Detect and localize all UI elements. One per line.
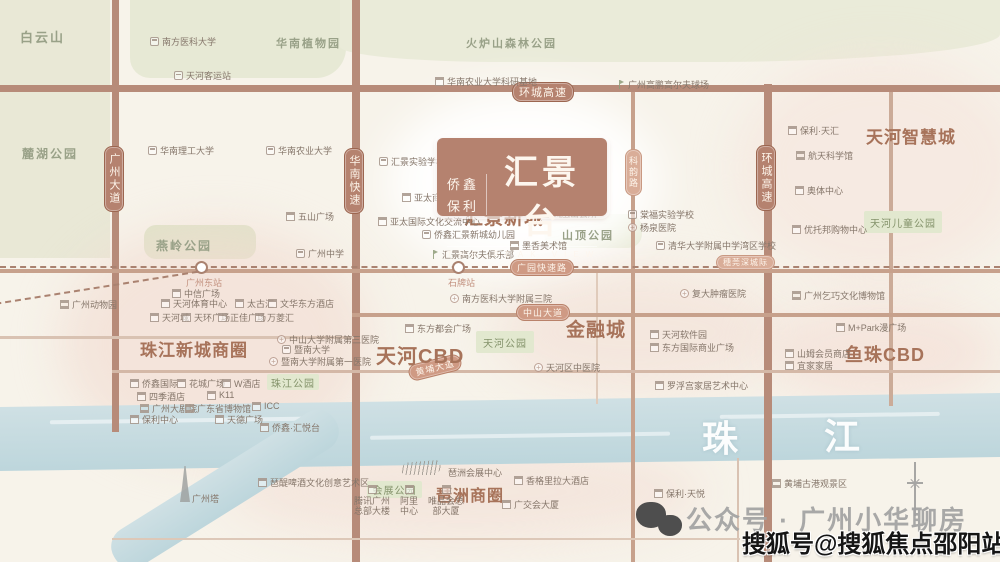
building-icon — [442, 485, 451, 494]
road-badge: 科韵路 — [625, 149, 642, 196]
building-icon — [368, 485, 377, 494]
district-label: 天河CBD — [376, 340, 464, 369]
school-icon — [656, 241, 665, 250]
poi-label: 保利·天悦 — [666, 487, 705, 500]
nature-label: 燕岭公园 — [156, 237, 212, 254]
poi-label: 侨鑫·汇悦台 — [272, 421, 320, 434]
building-icon — [286, 212, 295, 221]
map-poi: 复大肿瘤医院 — [680, 287, 746, 300]
poi-label: 天河软件园 — [662, 328, 707, 341]
map-poi: 罗浮宫家居艺术中心 — [655, 379, 748, 392]
road-yuejiang-road — [112, 538, 740, 540]
map-poi: ICC — [252, 401, 280, 411]
map-poi: 石牌站 — [448, 276, 475, 289]
building-icon — [654, 489, 663, 498]
poi-label: 五山广场 — [298, 210, 334, 223]
poi-label: 文华东方酒店 — [280, 297, 334, 310]
map-poi: 广州中学 — [296, 247, 344, 260]
poi-label: 清华大学附属中学湾区学校 — [668, 239, 776, 252]
map-poi: 南方医科大学 — [150, 35, 216, 48]
map-poi: 保利·天悦 — [654, 487, 705, 500]
map-poi: 华南农业大学科研基地 — [435, 75, 537, 88]
map-poi: 侨鑫国际 — [130, 377, 178, 390]
map-poi: 广州高鹏高尔夫球场 — [616, 78, 709, 91]
building-icon — [130, 415, 139, 424]
map-poi: 天河软件园 — [650, 328, 707, 341]
hospital-icon — [269, 357, 278, 366]
poi-label: 棠福实验学校 — [640, 208, 694, 221]
poi-label: 石牌站 — [448, 276, 475, 289]
poi-label: 广州乞巧文化博物馆 — [804, 289, 885, 302]
huolushan-forest-area — [340, 0, 1000, 62]
poi-label: 奥体中心 — [807, 184, 843, 197]
poi-label: 广州高鹏高尔夫球场 — [628, 78, 709, 91]
road-badge: 穗莞深城际 — [716, 255, 775, 270]
map-poi: M+Park漫广场 — [836, 321, 906, 334]
poi-label: 航天科学馆 — [808, 149, 853, 162]
road-badge: 华南快速 — [344, 148, 364, 214]
building-icon — [137, 392, 146, 401]
map-poi: 广交会大厦 — [502, 498, 559, 511]
map-poi: 琶洲会展中心 — [448, 466, 502, 479]
building-icon — [655, 381, 664, 390]
logo-english-name: THE PEAK VIEW — [447, 246, 597, 259]
shipai-station-icon — [452, 261, 465, 274]
poi-label: 东方都会广场 — [417, 322, 471, 335]
map-poi: 花城广场 — [177, 377, 225, 390]
map-poi: 侨鑫·汇悦台 — [260, 421, 320, 434]
map-poi: 棠福实验学校 — [628, 208, 694, 221]
bus-icon — [174, 71, 183, 80]
district-label: 鱼珠CBD — [845, 341, 925, 367]
poi-label: 天河区中医院 — [546, 361, 600, 374]
building-icon — [150, 313, 159, 322]
poi-label: 天德广场 — [227, 413, 263, 426]
poi-label: 华南理工大学 — [160, 144, 214, 157]
map-poi: 唯品会总部大厦 — [426, 485, 466, 517]
map-poi: 黄埔古港观景区 — [772, 477, 847, 490]
museum-icon — [185, 404, 194, 413]
road-guangzhou-avenue — [112, 0, 119, 432]
hospital-icon — [450, 294, 459, 303]
nature-label: 白云山 — [20, 27, 65, 46]
map-poi: 杨泉医院 — [628, 221, 676, 234]
building-icon — [252, 402, 261, 411]
map-poi: 南方医科大学附属三院 — [450, 292, 552, 305]
map-poi: 文华东方酒店 — [268, 297, 334, 310]
map-poi: 清华大学附属中学湾区学校 — [656, 239, 776, 252]
road-badge: 环城高速 — [756, 145, 776, 211]
poi-label: K11 — [219, 390, 234, 400]
map-poi: 宜家家居 — [785, 359, 833, 372]
river-label-jiang: 江 — [824, 408, 860, 460]
map-poi: 腾讯广州总部大楼 — [352, 485, 392, 517]
park-label-box: 珠江公园 — [267, 374, 319, 390]
poi-label: 琶洲会展中心 — [448, 466, 502, 479]
poi-label: 南方医科大学附属三院 — [462, 292, 552, 305]
poi-label: 广交会大厦 — [514, 498, 559, 511]
road-zhongshan-avenue — [352, 313, 1000, 317]
map-poi: 奥体中心 — [795, 184, 843, 197]
park-label-box: 天河儿童公园 — [864, 211, 942, 233]
building-icon — [650, 330, 659, 339]
map-poi: 保利·天汇 — [788, 124, 839, 137]
poi-label: 南方医科大学 — [162, 35, 216, 48]
logo-brand-top: 侨鑫 — [447, 174, 479, 193]
poi-label: 华南农业大学科研基地 — [447, 75, 537, 88]
museum-icon — [796, 151, 805, 160]
building-icon — [235, 299, 244, 308]
building-icon — [215, 415, 224, 424]
nature-label: 麓湖公园 — [22, 145, 78, 162]
school-icon — [266, 146, 275, 155]
building-icon — [795, 186, 804, 195]
building-icon — [435, 77, 444, 86]
poi-label: 花城广场 — [189, 377, 225, 390]
building-icon — [405, 324, 414, 333]
building-icon — [785, 349, 794, 358]
poi-label: M+Park漫广场 — [848, 321, 906, 334]
poi-label: 广州动物园 — [72, 298, 117, 311]
school-icon — [150, 37, 159, 46]
building-icon — [182, 313, 191, 322]
map-poi: 优托邦购物中心 — [792, 223, 867, 236]
building-icon — [177, 379, 186, 388]
building-icon — [222, 379, 231, 388]
poi-label: 保利中心 — [142, 413, 178, 426]
map-poi: 暨南大学附属第一医院 — [269, 355, 371, 368]
museum-icon — [140, 404, 149, 413]
map-poi: 广州动物园 — [60, 298, 117, 311]
poi-label: 万菱汇 — [267, 311, 294, 324]
park-label-box: 天河公园 — [476, 331, 534, 353]
poi-label: 侨鑫国际 — [142, 377, 178, 390]
building-icon — [161, 299, 170, 308]
building-icon — [402, 193, 411, 202]
building-icon — [785, 361, 794, 370]
poi-label: 华南农业大学 — [278, 144, 332, 157]
logo-row: 侨鑫 保利 汇景台 — [447, 145, 597, 243]
building-icon — [268, 299, 277, 308]
river-wave — [370, 432, 670, 440]
map-poi: 阿里中心 — [398, 485, 420, 517]
map-poi: 天德广场 — [215, 413, 263, 426]
poi-label: 广州中学 — [308, 247, 344, 260]
building-icon — [502, 500, 511, 509]
poi-label: 暨南大学附属第一医院 — [281, 355, 371, 368]
map-poi: K11 — [207, 390, 234, 400]
map-poi: 东方国际商业广场 — [650, 341, 734, 354]
guangzhou-east-station-icon — [195, 261, 208, 274]
district-label: 珠江新城商圈 — [140, 336, 248, 361]
school-icon — [379, 157, 388, 166]
poi-label: 优托邦购物中心 — [804, 223, 867, 236]
road-badge: 广州大道 — [104, 146, 124, 212]
map-poi: 广州塔 — [192, 492, 219, 505]
building-icon — [792, 225, 801, 234]
golf-icon — [616, 80, 625, 89]
building-icon — [218, 313, 227, 322]
museum-icon — [772, 479, 781, 488]
district-label: 天河智慧城 — [866, 123, 956, 148]
nature-label: 华南植物园 — [276, 35, 341, 51]
road-badge: 中山大道 — [516, 304, 570, 321]
building-icon — [260, 423, 269, 432]
map-poi: 天河客运站 — [174, 69, 231, 82]
project-logo: 侨鑫 保利 汇景台 THE PEAK VIEW — [437, 138, 607, 216]
hospital-icon — [680, 289, 689, 298]
map-poi: 天河区中医院 — [534, 361, 600, 374]
map-poi: 五山广场 — [286, 210, 334, 223]
district-label: 金融城 — [566, 315, 626, 342]
logo-project-name: 汇景台 — [487, 145, 597, 243]
poi-label: 复大肿瘤医院 — [692, 287, 746, 300]
building-icon — [514, 476, 523, 485]
building-icon — [130, 379, 139, 388]
road-badge: 广园快速路 — [510, 259, 574, 276]
poi-label: ICC — [264, 401, 280, 411]
poi-label: 黄埔古港观景区 — [784, 477, 847, 490]
nature-label: 火炉山森林公园 — [466, 35, 557, 51]
building-icon — [405, 485, 414, 494]
map-poi: W酒店 — [222, 377, 261, 390]
canton-tower-icon — [180, 466, 190, 502]
school-icon — [628, 210, 637, 219]
building-icon — [788, 126, 797, 135]
building-icon — [258, 478, 267, 487]
poi-label: 阿里中心 — [398, 496, 420, 517]
map-poi: 万菱汇 — [255, 311, 294, 324]
map-poi: 东方都会广场 — [405, 322, 471, 335]
poi-label: 保利·天汇 — [800, 124, 839, 137]
building-icon — [836, 323, 845, 332]
hospital-icon — [628, 223, 637, 232]
railway-suiguanshen-intercity — [0, 266, 1000, 268]
museum-icon — [60, 300, 69, 309]
map-poi: 广州乞巧文化博物馆 — [792, 289, 885, 302]
museum-icon — [792, 291, 801, 300]
map-poi: 航天科学馆 — [796, 149, 853, 162]
logo-brand: 侨鑫 保利 — [447, 174, 487, 215]
sohu-watermark: 搜狐号@搜狐焦点邵阳站 — [742, 524, 1000, 559]
poi-label: 宜家家居 — [797, 359, 833, 372]
map-poi: 华南农业大学 — [266, 144, 332, 157]
poi-label: 唯品会总部大厦 — [426, 496, 466, 517]
poi-label: 腾讯广州总部大楼 — [352, 496, 392, 517]
poi-label: 香格里拉大酒店 — [526, 474, 589, 487]
building-icon — [207, 391, 216, 400]
poi-label: 东方国际商业广场 — [662, 341, 734, 354]
poi-label: 天河体育中心 — [173, 297, 227, 310]
building-icon — [650, 343, 659, 352]
map-poi: 华南理工大学 — [148, 144, 214, 157]
building-icon — [378, 217, 387, 226]
map-poi: 天河体育中心 — [161, 297, 227, 310]
poi-label: 杨泉医院 — [640, 221, 676, 234]
wechat-icon — [658, 515, 682, 536]
school-icon — [296, 249, 305, 258]
logo-brand-bottom: 保利 — [447, 196, 479, 215]
school-icon — [422, 230, 431, 239]
building-icon — [255, 313, 264, 322]
road-guangyuan-expressway — [0, 269, 1000, 273]
map-poi: 保利中心 — [130, 413, 178, 426]
river-label-zhu: 珠 — [702, 410, 738, 462]
map-poi: 香格里拉大酒店 — [514, 474, 589, 487]
school-icon — [282, 345, 291, 354]
poi-label: 天河客运站 — [186, 69, 231, 82]
golf-icon — [430, 250, 439, 259]
poi-label: 广州塔 — [192, 492, 219, 505]
hospital-icon — [534, 363, 543, 372]
map-poi: 汇景实验学校 — [379, 155, 445, 168]
poi-label: 罗浮宫家居艺术中心 — [667, 379, 748, 392]
school-icon — [148, 146, 157, 155]
location-map: 珠 江 侨鑫 保利 汇景台 THE PEAK VIEW 公众号 — [0, 0, 1000, 562]
poi-label: W酒店 — [234, 377, 261, 390]
